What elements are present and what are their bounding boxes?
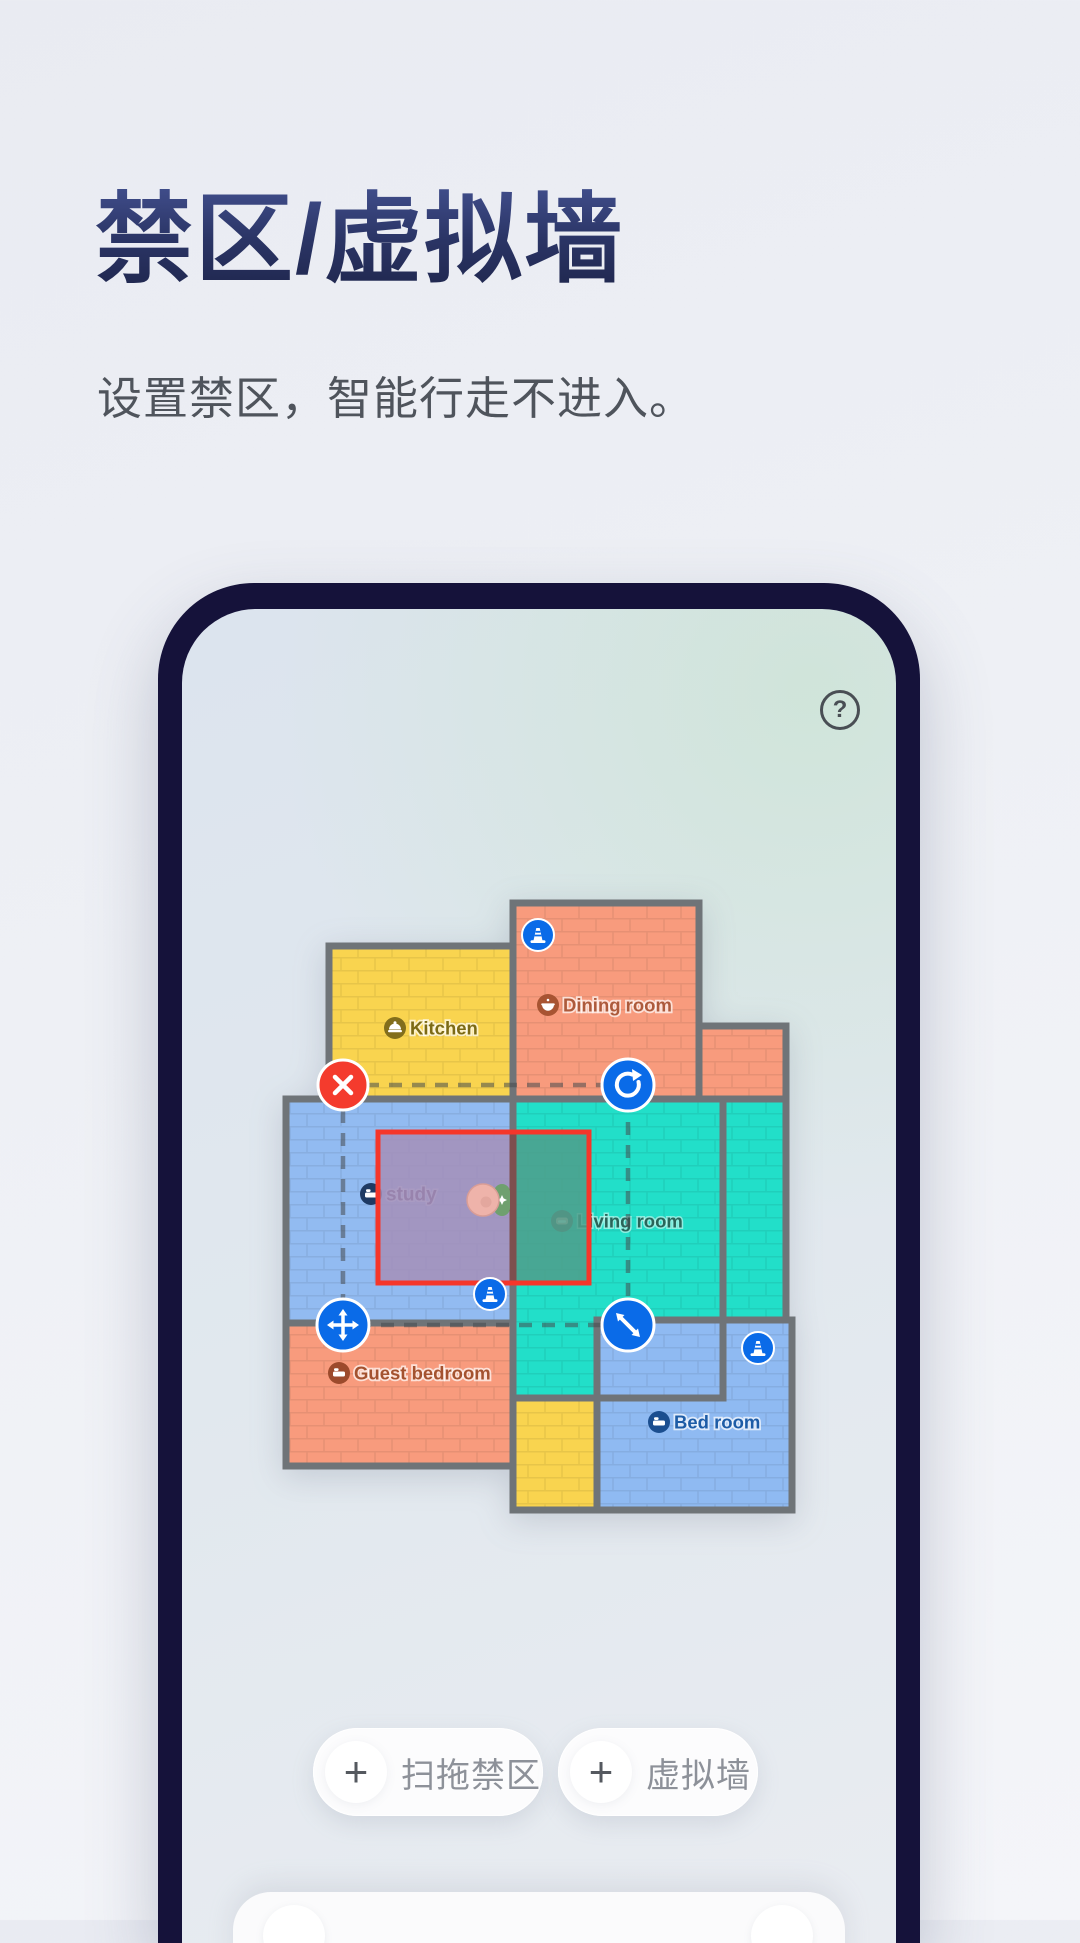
help-button[interactable]: ?	[820, 690, 860, 730]
page-subtitle: 设置禁区，智能行走不进入。	[97, 362, 695, 427]
sheet-button-right[interactable]	[751, 1905, 813, 1943]
sheet-button-left[interactable]	[263, 1905, 325, 1943]
add-virtual-wall-button[interactable]: + 虚拟墙	[558, 1728, 758, 1816]
svg-text:Dining room: Dining room	[563, 995, 672, 1016]
cone-marker[interactable]	[742, 1332, 774, 1364]
zone-delete-button[interactable]	[318, 1060, 368, 1110]
page-title: 禁区/虚拟墙	[95, 160, 624, 302]
plus-icon: +	[325, 1741, 387, 1803]
bottom-sheet	[233, 1892, 845, 1943]
bedroom-label: Bed room	[648, 1411, 760, 1433]
phone-mockup: ?	[158, 583, 920, 1943]
map-actions: + 扫拖禁区 + 虚拟墙	[182, 1728, 896, 1816]
question-mark-icon: ?	[833, 696, 848, 724]
plus-icon: +	[570, 1741, 632, 1803]
cone-marker[interactable]	[474, 1278, 506, 1310]
phone-screen: ?	[182, 609, 896, 1943]
floor-map: Kitchen Dining room Guest bedroom Bed ro…	[282, 892, 812, 1532]
zone-rotate-button[interactable]	[602, 1059, 654, 1111]
zone-resize-button[interactable]	[602, 1299, 654, 1351]
robot-vacuum	[467, 1184, 499, 1216]
zone-wall-tint	[510, 1132, 517, 1283]
add-no-go-zone-label: 扫拖禁区	[401, 1748, 541, 1797]
add-no-go-zone-button[interactable]: + 扫拖禁区	[313, 1728, 543, 1816]
zone-move-button[interactable]	[317, 1299, 369, 1351]
zone-overlay-living	[513, 1132, 589, 1283]
add-virtual-wall-label: 虚拟墙	[646, 1748, 751, 1797]
kitchen-label: Kitchen	[384, 1017, 478, 1039]
svg-text:Guest bedroom: Guest bedroom	[354, 1363, 491, 1384]
cone-marker[interactable]	[522, 919, 554, 951]
svg-text:Kitchen: Kitchen	[410, 1018, 478, 1039]
svg-text:Bed room: Bed room	[674, 1412, 760, 1433]
